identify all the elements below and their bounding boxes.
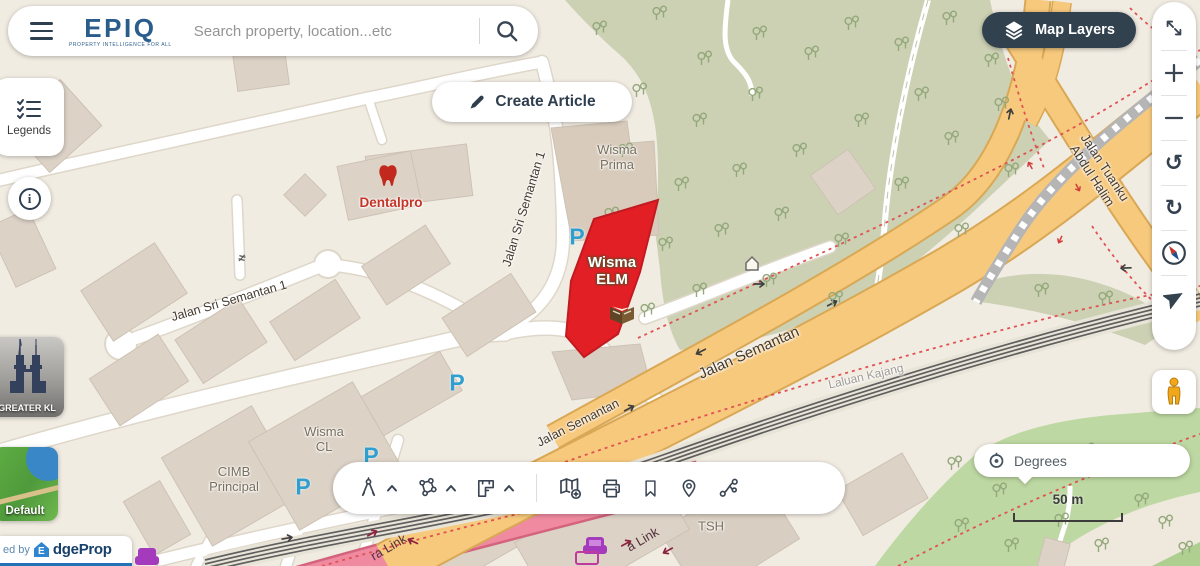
- chevron-up-icon[interactable]: [386, 484, 398, 492]
- pegman-icon: [1163, 377, 1185, 407]
- measure-compass-tool[interactable]: [357, 477, 398, 500]
- edgeprop-logo-icon: E: [33, 541, 50, 558]
- bearing-icon: [988, 452, 1005, 469]
- epiq-logo: EPIQ PROPERTY INTELLIGENCE FOR ALL: [69, 15, 172, 48]
- info-icon: i: [19, 188, 41, 210]
- printer-icon: [600, 477, 623, 500]
- location-pin-button[interactable]: [678, 477, 700, 500]
- street-view-pegman-button[interactable]: [1152, 370, 1196, 414]
- svg-text:E: E: [38, 546, 45, 557]
- compass-button[interactable]: [1152, 231, 1196, 275]
- map-style-greater-kl[interactable]: GREATER KL: [0, 337, 64, 417]
- thumb-art: [26, 447, 58, 481]
- drafting-compass-icon: [357, 477, 380, 500]
- legends-button[interactable]: Legends: [0, 78, 64, 156]
- map-tools-toolbar: [333, 462, 845, 514]
- scale-ruler: [1013, 513, 1123, 522]
- furniture-icon: [135, 548, 159, 565]
- rotate-ccw-button[interactable]: ↺: [1152, 141, 1196, 185]
- zoom-in-button[interactable]: [1152, 51, 1196, 95]
- menu-icon[interactable]: [28, 18, 55, 44]
- bookmark-icon: [640, 477, 661, 500]
- measure-ruler-tool[interactable]: [474, 477, 515, 500]
- layers-icon: [1003, 19, 1025, 42]
- route-tool-button[interactable]: [717, 477, 741, 500]
- fullscreen-button[interactable]: [1152, 6, 1196, 50]
- route-icon: [717, 477, 741, 500]
- measure-shape-tool[interactable]: [415, 477, 457, 500]
- chevron-up-icon[interactable]: [445, 484, 457, 492]
- map-scale: 50 m: [1013, 492, 1123, 522]
- polygon-nodes-icon: [415, 477, 439, 500]
- ruler-icon: [474, 477, 497, 500]
- checklist-icon: [16, 98, 42, 119]
- app-window: Wisma PrimaDentalproWisma ELMJalan Sri S…: [0, 0, 1200, 566]
- search-input[interactable]: [192, 22, 465, 41]
- search-bar: EPIQ PROPERTY INTELLIGENCE FOR ALL: [8, 6, 538, 56]
- locate-button[interactable]: [1152, 276, 1196, 320]
- print-button[interactable]: [600, 477, 623, 500]
- twin-towers-icon: [0, 337, 64, 399]
- rotate-cw-button[interactable]: ↻: [1152, 186, 1196, 230]
- map-style-default[interactable]: Default: [0, 447, 58, 521]
- create-article-button[interactable]: Create Article: [432, 82, 632, 122]
- thumb-art: [0, 479, 58, 508]
- add-map-button[interactable]: [558, 476, 583, 500]
- info-button[interactable]: i: [8, 177, 51, 220]
- map-layers-button[interactable]: Map Layers: [982, 12, 1136, 48]
- pencil-icon: [468, 94, 485, 111]
- search-icon[interactable]: [494, 18, 520, 44]
- chevron-up-icon[interactable]: [503, 484, 515, 492]
- zoom-out-button[interactable]: [1152, 96, 1196, 140]
- location-pin-icon: [678, 477, 700, 500]
- map-add-icon: [558, 476, 583, 500]
- divider: [536, 474, 537, 502]
- degrees-selector[interactable]: Degrees: [974, 444, 1190, 477]
- map-nav-controls: ↺ ↻: [1152, 2, 1196, 350]
- bookmark-button[interactable]: [640, 477, 661, 500]
- divider: [479, 18, 480, 44]
- attribution-badge: ed by E dgeProp: [0, 536, 132, 566]
